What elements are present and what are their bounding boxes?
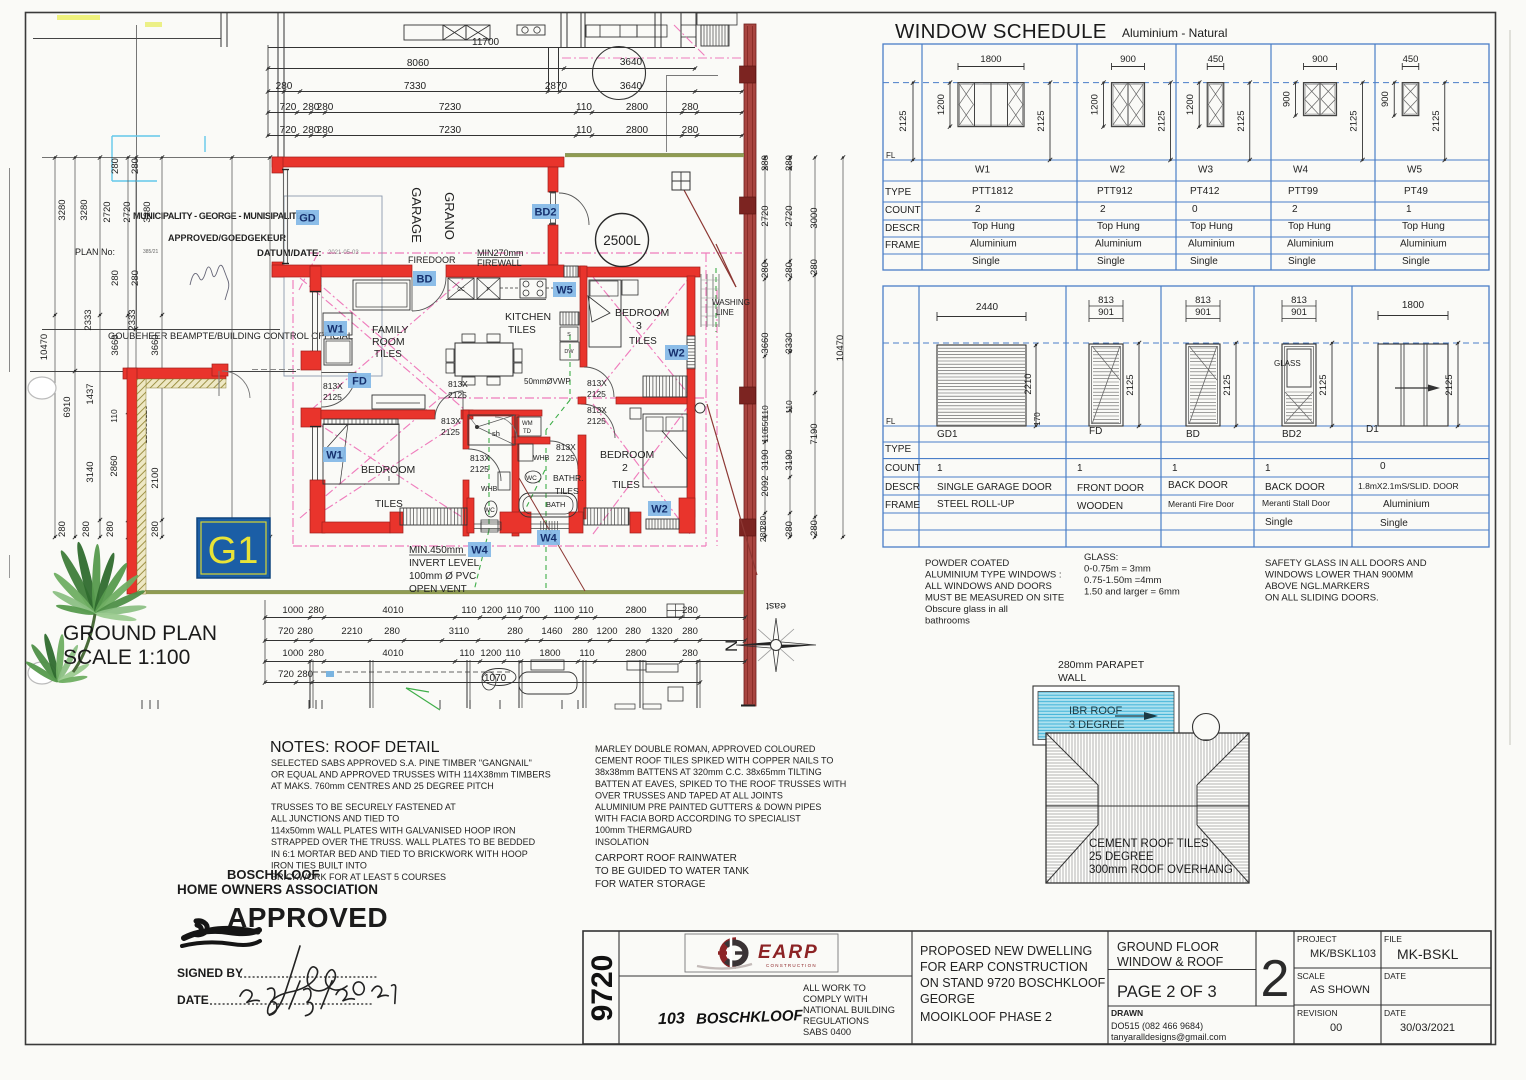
svg-text:110: 110 [506, 605, 521, 616]
svg-text:110: 110 [461, 605, 476, 616]
svg-text:BACK DOOR: BACK DOOR [1265, 482, 1325, 493]
svg-text:2210: 2210 [1023, 373, 1034, 394]
svg-text:813X: 813X [470, 453, 490, 463]
svg-text:FD: FD [352, 376, 367, 388]
svg-text:Obscure glass in all: Obscure glass in all [925, 604, 1008, 615]
svg-text:280: 280 [682, 605, 698, 616]
svg-text:Single: Single [1265, 517, 1293, 528]
svg-text:2800: 2800 [626, 102, 649, 113]
svg-text:ON ALL SLIDING DOORS.: ON ALL SLIDING DOORS. [1265, 593, 1379, 604]
svg-text:DESCR: DESCR [885, 223, 920, 234]
svg-text:W4: W4 [1293, 165, 1308, 176]
svg-text:3: 3 [636, 320, 642, 332]
svg-text:PTT912: PTT912 [1097, 186, 1133, 197]
svg-text:Meranti Stall Door: Meranti Stall Door [1262, 498, 1330, 508]
svg-text:7230: 7230 [439, 125, 462, 136]
svg-text:10470: 10470 [835, 335, 846, 361]
svg-text:W3: W3 [1198, 165, 1213, 176]
svg-text:900: 900 [1281, 91, 1292, 107]
svg-text:GARAGE: GARAGE [409, 187, 424, 243]
svg-text:Meranti Fire Door: Meranti Fire Door [1168, 499, 1234, 509]
svg-text:BD: BD [417, 274, 433, 286]
svg-text:3190: 3190 [784, 449, 795, 470]
svg-text:REGULATIONS: REGULATIONS [803, 1016, 869, 1026]
svg-text:KITCHEN: KITCHEN [505, 311, 551, 323]
svg-text:GROUND FLOOR: GROUND FLOOR [1117, 940, 1219, 954]
svg-text:ALL WORK TO: ALL WORK TO [803, 983, 866, 993]
svg-text:2720: 2720 [102, 201, 113, 222]
svg-text:PROJECT: PROJECT [1297, 934, 1337, 944]
svg-text:450: 450 [1208, 54, 1224, 65]
svg-text:700: 700 [524, 605, 540, 616]
svg-text:BACK DOOR: BACK DOOR [1168, 480, 1228, 491]
svg-text:110: 110 [784, 400, 794, 414]
svg-text:SCALE: SCALE [1297, 971, 1325, 981]
svg-text:300mm ROOF OVERHANG: 300mm ROOF OVERHANG [1089, 864, 1233, 876]
svg-text:280: 280 [57, 521, 68, 537]
svg-text:2125: 2125 [1157, 110, 1168, 131]
svg-text:FIREDOOR: FIREDOOR [408, 255, 456, 265]
svg-text:280: 280 [81, 521, 92, 537]
svg-text:FRONT DOOR: FRONT DOOR [1077, 483, 1144, 494]
svg-text:tanyaralldesigns@gmail.com: tanyaralldesigns@gmail.com [1111, 1032, 1226, 1042]
svg-text:MIN.450mm: MIN.450mm [409, 545, 463, 556]
svg-text:ROOM: ROOM [372, 336, 405, 348]
svg-text:TILES: TILES [555, 486, 579, 496]
svg-text:280: 280 [572, 626, 588, 637]
svg-text:110: 110 [459, 648, 474, 659]
svg-text:FILE: FILE [1384, 934, 1402, 944]
svg-text:2100: 2100 [150, 467, 161, 488]
svg-text:IBR ROOF: IBR ROOF [1069, 705, 1122, 717]
svg-text:2092: 2092 [760, 475, 771, 496]
svg-text:720: 720 [278, 669, 294, 680]
svg-text:Aluminium - Natural: Aluminium - Natural [1122, 26, 1227, 40]
svg-text:450: 450 [1403, 54, 1419, 65]
svg-text:7230: 7230 [439, 102, 462, 113]
svg-text:2720: 2720 [122, 201, 133, 222]
svg-text:3280: 3280 [57, 199, 68, 220]
svg-text:PLAN No:: PLAN No: [75, 247, 115, 257]
svg-text:4010: 4010 [382, 648, 403, 659]
svg-text:WINDOWS LOWER THAN 900MM: WINDOWS LOWER THAN 900MM [1265, 570, 1413, 581]
svg-text:TD: TD [523, 429, 532, 435]
svg-text:2: 2 [1100, 204, 1106, 215]
svg-text:10470: 10470 [39, 334, 50, 360]
svg-text:2210: 2210 [341, 626, 362, 637]
svg-text:TO BE GUIDED TO WATER TANK: TO BE GUIDED TO WATER TANK [595, 866, 749, 877]
svg-text:110: 110 [109, 409, 119, 423]
svg-text:3280: 3280 [142, 201, 153, 222]
svg-text:FL: FL [886, 151, 896, 160]
svg-text:GEORGE: GEORGE [920, 992, 975, 1006]
svg-text:1: 1 [1406, 204, 1412, 215]
svg-text:FRAME: FRAME [885, 500, 920, 511]
svg-text:2333: 2333 [83, 309, 94, 330]
svg-text:W5: W5 [556, 285, 573, 297]
svg-text:1.50 and larger = 6mm: 1.50 and larger = 6mm [1084, 587, 1180, 598]
svg-text:Top Hung: Top Hung [972, 221, 1015, 232]
svg-text:HOME OWNERS ASSOCIATION: HOME OWNERS ASSOCIATION [177, 882, 378, 897]
svg-text:TYPE: TYPE [885, 444, 911, 455]
svg-text:110: 110 [760, 429, 770, 443]
svg-text:DATE: DATE [177, 993, 209, 1007]
svg-text:280: 280 [784, 262, 795, 278]
svg-text:114x50mm WALL PLATES WITH GALV: 114x50mm WALL PLATES WITH GALVANISED HOO… [271, 825, 516, 835]
svg-text:2125: 2125 [1236, 110, 1247, 131]
svg-text:C O N S T R U C T I O N: C O N S T R U C T I O N [766, 963, 816, 968]
svg-text:MK-BSKL: MK-BSKL [1397, 946, 1459, 962]
svg-text:W2: W2 [1110, 165, 1125, 176]
svg-text:901: 901 [1291, 307, 1307, 318]
svg-text:1437: 1437 [85, 383, 96, 404]
svg-text:WINDOW SCHEDULE: WINDOW SCHEDULE [895, 20, 1107, 43]
svg-text:280: 280 [308, 605, 324, 616]
svg-text:25 DEGREE: 25 DEGREE [1089, 851, 1154, 863]
svg-text:FAMILY: FAMILY [372, 324, 409, 336]
svg-text:3660: 3660 [150, 334, 161, 355]
svg-text:Top Hung: Top Hung [1288, 221, 1331, 232]
svg-text:PT412: PT412 [1190, 186, 1220, 197]
svg-text:W4: W4 [471, 545, 488, 557]
svg-text:FL: FL [886, 417, 896, 426]
svg-text:280: 280 [297, 669, 313, 680]
svg-text:Aluminium: Aluminium [1383, 499, 1430, 510]
svg-text:4010: 4010 [382, 605, 403, 616]
svg-text:W1: W1 [326, 450, 343, 462]
svg-text:Single: Single [1288, 256, 1316, 267]
svg-text:110: 110 [578, 605, 593, 616]
svg-text:Top Hung: Top Hung [1402, 221, 1445, 232]
svg-text:2125: 2125 [1349, 110, 1360, 131]
svg-text:IN 6:1 MORTAR BED AND TIED TO: IN 6:1 MORTAR BED AND TIED TO BRICKWORK … [271, 849, 528, 859]
svg-text:Single: Single [972, 256, 1000, 267]
svg-text:280: 280 [130, 270, 141, 286]
svg-text:WHB: WHB [533, 455, 550, 462]
svg-text:GROUND PLAN: GROUND PLAN [63, 622, 217, 645]
svg-text:280: 280 [809, 259, 820, 275]
svg-text:GD1: GD1 [937, 429, 958, 440]
svg-text:FOR WATER STORAGE: FOR WATER STORAGE [595, 879, 706, 890]
svg-text:SINGLE GARAGE DOOR: SINGLE GARAGE DOOR [937, 482, 1052, 493]
svg-text:720: 720 [280, 125, 297, 136]
svg-text:1200: 1200 [596, 626, 617, 637]
svg-text:GD: GD [299, 213, 316, 225]
svg-text:WITH FACIA BORD ACCORDING TO S: WITH FACIA BORD ACCORDING TO SPECIALIST [595, 814, 801, 824]
svg-text:Single: Single [1097, 256, 1125, 267]
svg-text:280: 280 [625, 626, 641, 637]
svg-text:Top Hung: Top Hung [1190, 221, 1233, 232]
svg-text:ALUMINIUM TYPE WINDOWS :: ALUMINIUM TYPE WINDOWS : [925, 570, 1062, 581]
svg-text:900: 900 [1380, 91, 1391, 107]
svg-text:2125: 2125 [470, 464, 489, 474]
svg-text:8060: 8060 [407, 58, 430, 69]
svg-text:110: 110 [576, 102, 592, 113]
svg-text:MARLEY DOUBLE ROMAN, APPROVED: MARLEY DOUBLE ROMAN, APPROVED COLOURED [595, 744, 816, 754]
svg-text:TILES: TILES [374, 349, 402, 360]
svg-text:3000: 3000 [809, 207, 820, 228]
svg-text:LINE: LINE [716, 308, 734, 317]
svg-text:DO515 (082 466 9684): DO515 (082 466 9684) [1111, 1021, 1203, 1031]
svg-text:SAFETY GLASS IN ALL DOORS AND: SAFETY GLASS IN ALL DOORS AND [1265, 558, 1427, 569]
svg-text:280: 280 [760, 155, 771, 171]
svg-text:OVER TRUSSES AND TAPED AT ALL: OVER TRUSSES AND TAPED AT ALL JOINTS [595, 790, 783, 800]
svg-text:2800: 2800 [625, 648, 646, 659]
svg-text:6910: 6910 [62, 396, 73, 417]
svg-text:0: 0 [1192, 204, 1198, 215]
svg-text:MIN270mm: MIN270mm [477, 248, 524, 258]
svg-text:280: 280 [758, 528, 768, 542]
svg-text:ON STAND 9720 BOSCHKLOOF: ON STAND 9720 BOSCHKLOOF [920, 976, 1106, 990]
svg-text:7330: 7330 [404, 81, 427, 92]
svg-text:BD: BD [1186, 429, 1200, 440]
svg-text:3640: 3640 [620, 81, 643, 92]
svg-text:1200: 1200 [1089, 94, 1100, 115]
svg-text:STRAPPED OVER THE TRUSS. WALL: STRAPPED OVER THE TRUSS. WALL PLATES TO … [271, 837, 536, 847]
svg-text:GLASS: GLASS [1274, 359, 1301, 368]
svg-text:TILES: TILES [629, 336, 657, 347]
svg-text:DATE: DATE [1384, 1008, 1406, 1018]
svg-text:0.75-1.50m =4mm: 0.75-1.50m =4mm [1084, 575, 1161, 586]
svg-text:GLASS:: GLASS: [1084, 552, 1118, 563]
svg-text:APPROVED/GOEDGEKEUR: APPROVED/GOEDGEKEUR [168, 233, 287, 243]
svg-text:WINDOW & ROOF: WINDOW & ROOF [1117, 955, 1224, 969]
svg-text:50mmØVWP: 50mmØVWP [524, 377, 571, 386]
svg-text:TILES: TILES [375, 499, 403, 510]
svg-text:813: 813 [1291, 295, 1307, 306]
svg-text:720: 720 [278, 626, 294, 637]
svg-text:813X: 813X [323, 381, 343, 391]
svg-text:3640: 3640 [620, 57, 643, 68]
svg-text:1320: 1320 [651, 626, 672, 637]
svg-text:280: 280 [682, 648, 698, 659]
svg-text:2125: 2125 [1125, 374, 1136, 395]
svg-text:813X: 813X [587, 378, 607, 388]
svg-text:TILES: TILES [508, 325, 536, 336]
svg-text:Aluminium: Aluminium [1188, 239, 1235, 250]
svg-text:W4: W4 [540, 533, 557, 545]
svg-text:SIGNED BY: SIGNED BY [177, 966, 243, 980]
svg-text:2333: 2333 [127, 309, 138, 330]
svg-text:900: 900 [1120, 54, 1136, 65]
svg-text:813: 813 [1098, 295, 1114, 306]
svg-text:REVISION: REVISION [1297, 1008, 1338, 1018]
svg-text:1000: 1000 [282, 648, 303, 659]
svg-text:280: 280 [110, 270, 121, 286]
svg-text:280: 280 [110, 158, 121, 174]
svg-text:2125: 2125 [448, 390, 467, 400]
svg-text:7190: 7190 [809, 423, 820, 444]
svg-text:1800: 1800 [1402, 300, 1425, 311]
svg-text:FD: FD [1089, 426, 1102, 437]
svg-text:2125: 2125 [1222, 374, 1233, 395]
svg-text:2125: 2125 [587, 416, 606, 426]
svg-text:COUNT: COUNT [885, 205, 921, 216]
svg-text:2125: 2125 [556, 453, 575, 463]
svg-text:280: 280 [784, 521, 795, 537]
svg-text:N: N [722, 640, 741, 652]
svg-text:OPEN VENT: OPEN VENT [409, 584, 467, 595]
svg-text:DATE: DATE [1384, 971, 1406, 981]
svg-text:1200: 1200 [1185, 94, 1196, 115]
svg-text:Aluminium: Aluminium [1400, 239, 1447, 250]
svg-text:1: 1 [937, 463, 943, 474]
svg-text:2800: 2800 [626, 125, 649, 136]
svg-text:2125: 2125 [323, 392, 342, 402]
svg-text:EARP: EARP [758, 942, 819, 963]
svg-text:WALL: WALL [1058, 672, 1086, 684]
svg-text:103: 103 [658, 1010, 685, 1028]
svg-text:280: 280 [384, 626, 400, 637]
svg-text:1200: 1200 [481, 605, 502, 616]
svg-text:110: 110 [505, 648, 520, 659]
svg-text:110: 110 [579, 648, 594, 659]
svg-text:SCALE 1:100: SCALE 1:100 [63, 646, 190, 669]
svg-text:FOR EARP CONSTRUCTION: FOR EARP CONSTRUCTION [920, 960, 1088, 974]
svg-text:STEEL ROLL-UP: STEEL ROLL-UP [937, 499, 1015, 510]
svg-text:3 DEGREE: 3 DEGREE [1069, 719, 1125, 731]
svg-text:F: F [486, 287, 489, 293]
svg-text:3660: 3660 [760, 332, 771, 353]
svg-text:1800: 1800 [539, 648, 560, 659]
svg-text:W1: W1 [975, 165, 990, 176]
svg-text:G1: G1 [208, 530, 259, 572]
svg-text:280: 280 [507, 626, 523, 637]
svg-text:BD2: BD2 [534, 207, 556, 219]
svg-text:W2: W2 [668, 348, 685, 360]
svg-text:BOSCHKLOOF: BOSCHKLOOF [227, 867, 320, 882]
svg-text:3330: 3330 [784, 332, 795, 353]
svg-text:2021-05-03: 2021-05-03 [328, 250, 359, 256]
svg-text:TILES: TILES [612, 480, 640, 491]
svg-text:280: 280 [682, 626, 698, 637]
svg-text:BD2: BD2 [1282, 429, 1302, 440]
svg-text:ABOVE NGL.MARKERS: ABOVE NGL.MARKERS [1265, 581, 1370, 592]
svg-text:Single: Single [1402, 256, 1430, 267]
svg-text:GRANO: GRANO [442, 192, 457, 240]
svg-text:PTT1812: PTT1812 [972, 186, 1014, 197]
svg-text:DESCR: DESCR [885, 482, 920, 493]
svg-text:CEMENT ROOF TILES SPIKED WITH: CEMENT ROOF TILES SPIKED WITH COPPER NAI… [595, 756, 833, 766]
svg-text:WC: WC [484, 507, 495, 514]
svg-text:2860: 2860 [109, 455, 120, 476]
svg-text:280: 280 [682, 125, 699, 136]
svg-text:GOUBEHEER BEAMPTE/BUILDING CON: GOUBEHEER BEAMPTE/BUILDING CONTROL OFFIC… [108, 331, 353, 341]
svg-text:11700: 11700 [472, 37, 500, 48]
svg-text:2125: 2125 [1431, 110, 1442, 131]
svg-text:Aluminium: Aluminium [970, 239, 1017, 250]
svg-text:BEDROOM: BEDROOM [361, 464, 415, 476]
svg-text:W2: W2 [651, 504, 668, 516]
svg-text:3110: 3110 [449, 626, 469, 637]
svg-text:2: 2 [1261, 950, 1290, 1008]
svg-text:TYPE: TYPE [885, 187, 911, 198]
svg-text:2: 2 [1292, 204, 1298, 215]
svg-text:280: 280 [297, 626, 313, 637]
svg-text:280: 280 [130, 158, 141, 174]
svg-text:2800: 2800 [625, 605, 646, 616]
svg-text:280: 280 [105, 521, 116, 537]
svg-text:POWDER COATED: POWDER COATED [925, 558, 1009, 569]
svg-text:2125: 2125 [898, 110, 909, 131]
svg-text:CEMENT ROOF TILES: CEMENT ROOF TILES [1089, 838, 1209, 850]
svg-text:2125: 2125 [441, 427, 460, 437]
svg-text:2440: 2440 [976, 302, 999, 313]
svg-text:BEDROOM: BEDROOM [600, 449, 654, 461]
svg-text:110: 110 [576, 125, 592, 136]
svg-text:INVERT LEVEL: INVERT LEVEL [409, 558, 480, 569]
svg-text:30/03/2021: 30/03/2021 [1400, 1022, 1455, 1034]
svg-text:COMPLY WITH: COMPLY WITH [803, 994, 868, 1004]
svg-text:BATHR.: BATHR. [553, 473, 584, 483]
svg-text:901: 901 [1098, 307, 1114, 318]
svg-text:280: 280 [150, 521, 161, 537]
svg-text:MUST BE MEASURED ON SITE: MUST BE MEASURED ON SITE [925, 593, 1064, 604]
svg-text:00: 00 [1330, 1022, 1342, 1034]
svg-text:W5: W5 [1407, 165, 1422, 176]
svg-text:ALL JUNCTIONS AND TIED TO: ALL JUNCTIONS AND TIED TO [271, 814, 399, 824]
svg-text:BATH: BATH [546, 500, 565, 509]
svg-text:38x38mm BATTENS AT 320mm C.C.: 38x38mm BATTENS AT 320mm C.C. 38x65mm TI… [595, 767, 822, 777]
svg-text:PAGE 2 OF 3: PAGE 2 OF 3 [1117, 983, 1217, 1001]
svg-text:901: 901 [1195, 307, 1211, 318]
svg-text:813X: 813X [587, 405, 607, 415]
svg-text:NOTES: ROOF DETAIL: NOTES: ROOF DETAIL [270, 739, 440, 756]
svg-text:100mm THERMGAURD: 100mm THERMGAURD [595, 825, 692, 835]
svg-text:WHB: WHB [481, 486, 498, 493]
svg-text:2720: 2720 [760, 205, 771, 226]
svg-text:280: 280 [784, 155, 795, 171]
svg-text:280: 280 [682, 102, 699, 113]
svg-text:SELECTED SABS APPROVED S.A. PI: SELECTED SABS APPROVED S.A. PINE TIMBER … [271, 758, 532, 768]
svg-text:1460: 1460 [541, 626, 562, 637]
svg-text:sh: sh [492, 429, 500, 438]
svg-text:PROPOSED NEW DWELLING: PROPOSED NEW DWELLING [920, 944, 1092, 958]
svg-text:280mm PARAPET: 280mm PARAPET [1058, 659, 1145, 671]
svg-text:Single: Single [1190, 256, 1218, 267]
svg-text:2: 2 [975, 204, 981, 215]
svg-text:1: 1 [1265, 463, 1271, 474]
svg-text:W1: W1 [327, 324, 344, 336]
svg-text:110: 110 [760, 405, 770, 419]
svg-text:2500L: 2500L [603, 233, 641, 248]
svg-text:280: 280 [809, 520, 820, 536]
svg-text:Aluminium: Aluminium [1095, 239, 1142, 250]
svg-text:NATIONAL BUILDING: NATIONAL BUILDING [803, 1005, 895, 1015]
svg-text:170: 170 [1033, 412, 1042, 426]
svg-text:1200: 1200 [936, 94, 947, 115]
svg-text:1.8mX2.1mS/SLID. DOOR: 1.8mX2.1mS/SLID. DOOR [1358, 481, 1459, 491]
svg-text:900: 900 [1312, 54, 1328, 65]
svg-text:ALL WINDOWS AND DOORS: ALL WINDOWS AND DOORS [925, 581, 1052, 592]
svg-text:FIREWALL: FIREWALL [477, 258, 522, 268]
svg-text:813X: 813X [441, 416, 461, 426]
svg-text:3190: 3190 [760, 449, 771, 470]
svg-text:0-0.75m = 3mm: 0-0.75m = 3mm [1084, 564, 1151, 575]
svg-text:0: 0 [1380, 461, 1386, 472]
svg-text:DRAWN: DRAWN [1111, 1008, 1143, 1018]
svg-text:WM: WM [522, 421, 533, 427]
svg-text:AS SHOWN: AS SHOWN [1310, 984, 1370, 996]
svg-text:TRUSSES TO BE SECURELY FASTENE: TRUSSES TO BE SECURELY FASTENED AT [271, 802, 456, 812]
svg-text:1200: 1200 [480, 648, 501, 659]
svg-text:CC: CC [457, 287, 465, 293]
svg-text:813: 813 [1195, 295, 1211, 306]
svg-text:2: 2 [622, 462, 628, 474]
svg-text:WOODEN: WOODEN [1077, 501, 1123, 512]
svg-text:BEDROOM: BEDROOM [615, 307, 669, 319]
svg-text:9720: 9720 [586, 955, 619, 1022]
